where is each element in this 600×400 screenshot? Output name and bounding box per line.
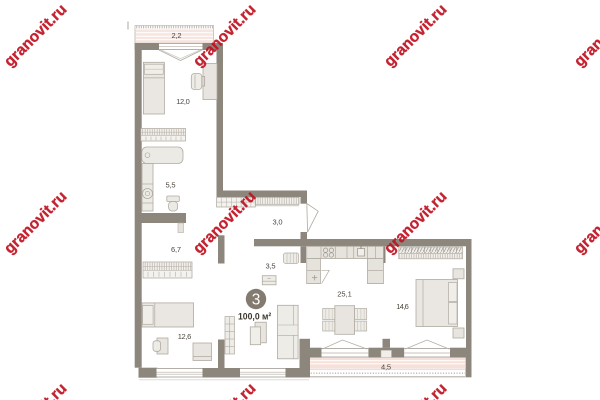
svg-text:3,5: 3,5 — [266, 261, 276, 270]
svg-text:3: 3 — [252, 292, 261, 309]
svg-text:2,2: 2,2 — [172, 31, 182, 40]
svg-text:3,0: 3,0 — [273, 218, 283, 227]
svg-text:4,5: 4,5 — [381, 363, 391, 372]
svg-text:14,6: 14,6 — [396, 302, 409, 311]
svg-text:25,1: 25,1 — [337, 289, 352, 298]
svg-text:12,0: 12,0 — [176, 97, 190, 106]
svg-text:12,6: 12,6 — [178, 332, 192, 341]
svg-text:5,5: 5,5 — [166, 181, 176, 190]
svg-text:6,7: 6,7 — [171, 245, 181, 254]
svg-text:100,0 м²: 100,0 м² — [238, 311, 271, 322]
